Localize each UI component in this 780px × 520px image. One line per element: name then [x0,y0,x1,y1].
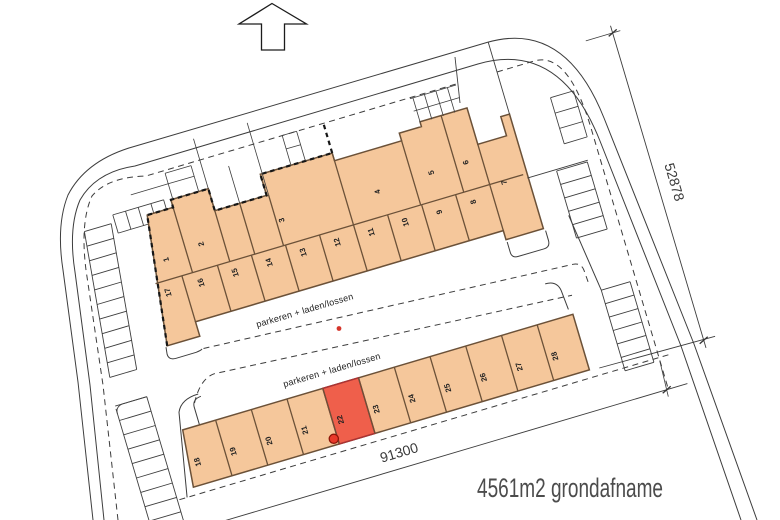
svg-text:4561m2 grondafname: 4561m2 grondafname [477,473,663,503]
